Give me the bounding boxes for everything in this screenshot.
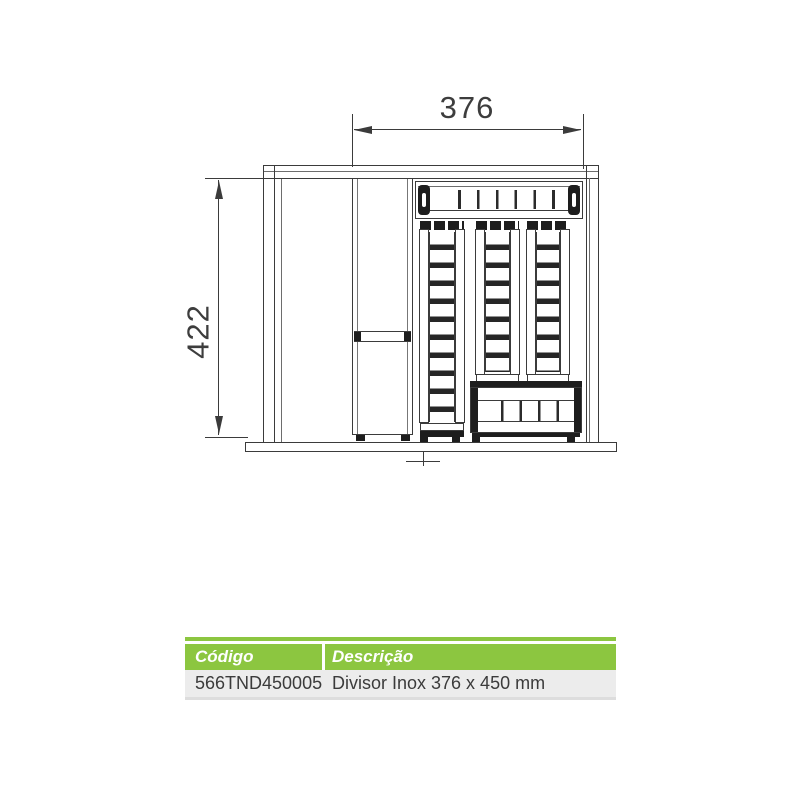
tray-slot-ticks	[485, 401, 567, 421]
ladder-rungs	[485, 232, 510, 372]
extension-line	[205, 437, 248, 438]
ladder-rail	[560, 229, 570, 375]
channel-rail-left	[357, 179, 358, 434]
height-dimension-label: 422	[183, 277, 214, 387]
drawer-base-plate	[245, 442, 617, 452]
header-description: Descrição	[325, 644, 616, 670]
drawer-left-wall-face	[281, 178, 282, 442]
tray-foot	[567, 437, 575, 442]
centre-mark-vertical	[423, 452, 424, 466]
width-dimension-label: 376	[412, 92, 522, 123]
tray-lower-line	[473, 421, 579, 422]
knife-block-bottom-rail	[418, 210, 580, 211]
channel-foot	[356, 435, 365, 441]
header-code: Código	[185, 644, 322, 670]
table-data-row: 566TND450005 Divisor Inox 376 x 450 mm	[185, 670, 616, 700]
knife-block-top-rail	[418, 186, 580, 187]
ladder-rail	[419, 229, 429, 423]
dimension-arrow-down	[215, 416, 223, 434]
channel-crossbar	[354, 331, 411, 342]
ladder-rungs	[536, 232, 560, 372]
drawer-top-edge-inner	[263, 178, 598, 179]
ladder-rail	[475, 229, 485, 375]
knife-block-slot-ticks	[442, 190, 556, 209]
cell-description: Divisor Inox 376 x 450 mm	[325, 670, 616, 697]
drawer-left-wall-inner	[274, 165, 275, 443]
drawer-right-wall-inner	[586, 165, 587, 443]
crossbar-end-tab	[354, 332, 361, 341]
end-cap-slot	[422, 193, 426, 207]
dimension-arrow-left	[354, 126, 372, 134]
product-spec-table: Código Descrição 566TND450005 Divisor In…	[185, 637, 616, 700]
extension-line	[205, 178, 291, 179]
tray-end-cap	[471, 388, 478, 432]
centre-mark-horizontal	[406, 461, 440, 462]
drawer-left-wall-outer	[263, 165, 264, 443]
knife-block-end-cap	[568, 185, 580, 215]
drawer-top-edge-mid	[263, 171, 598, 172]
drawer-right-wall-face	[589, 178, 590, 442]
end-cap-slot	[572, 193, 576, 207]
ladder-rail	[510, 229, 520, 375]
dimension-arrow-right	[563, 126, 581, 134]
table-header-row: Código Descrição	[185, 644, 616, 670]
ladder-rail	[526, 229, 536, 375]
crossbar-end-tab	[404, 332, 411, 341]
tray-end-cap	[574, 388, 581, 432]
extension-line	[352, 114, 353, 167]
ladder-bottom-band	[420, 423, 464, 431]
drawer-right-wall-outer	[598, 165, 599, 443]
drawer-top-edge-outer	[263, 165, 598, 166]
channel-foot	[401, 435, 410, 441]
bottom-slotted-tray	[470, 381, 582, 437]
tray-body	[470, 387, 582, 433]
ladder-foot	[452, 437, 460, 442]
catalog-page: 376 422 Código Descrição 566TND450005 Di…	[0, 0, 800, 800]
tray-foot	[472, 437, 480, 442]
cutlery-ladder-column-right	[526, 221, 570, 382]
dimension-arrow-up	[215, 181, 223, 199]
channel-column	[352, 178, 413, 435]
cutlery-ladder-column-left	[419, 221, 465, 437]
ladder-foot	[420, 437, 428, 442]
channel-rail-right	[407, 179, 408, 434]
tray-bottom-rail	[472, 433, 580, 437]
knife-block-tray	[415, 181, 583, 219]
dimension-line	[218, 180, 219, 435]
knife-block-end-cap	[418, 185, 430, 215]
extension-line	[583, 114, 584, 169]
cell-code: 566TND450005	[185, 670, 325, 697]
ladder-rungs	[429, 232, 455, 422]
ladder-rail	[455, 229, 465, 423]
dimension-line	[354, 129, 581, 130]
cutlery-ladder-column-middle	[475, 221, 520, 382]
